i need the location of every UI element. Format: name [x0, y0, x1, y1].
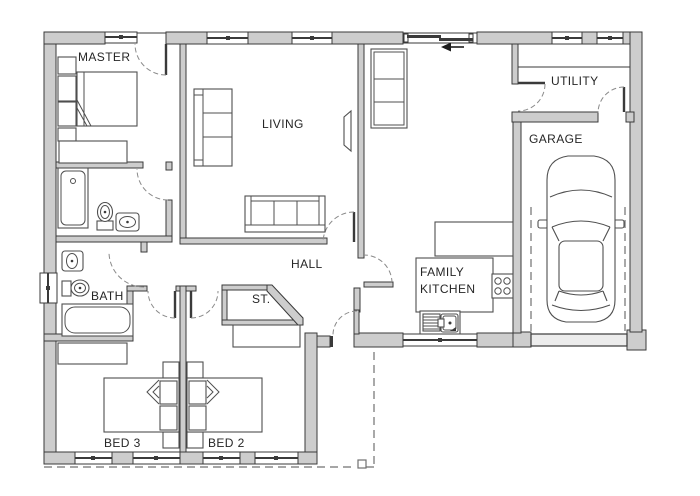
- room-label-bath: BATH: [91, 290, 124, 302]
- wardrobe: [233, 325, 300, 347]
- bathtub: [62, 304, 133, 336]
- sink: [116, 213, 139, 231]
- ensuite-fixtures: [58, 168, 139, 231]
- living-window-2: [292, 32, 332, 44]
- bed3-door: [148, 291, 175, 318]
- pillow: [160, 381, 177, 404]
- wardrobe: [58, 343, 127, 364]
- living-furniture: [194, 89, 351, 232]
- room-label-family-kitchen-line2: KITCHEN: [420, 283, 475, 295]
- garage-contents: [531, 156, 625, 331]
- room-label-bed3: BED 3: [104, 437, 141, 449]
- bed3-window-1: [75, 452, 112, 464]
- nightstand: [58, 57, 76, 74]
- sink: [62, 251, 83, 271]
- utility-window-1: [552, 32, 582, 44]
- bath-door: [109, 252, 144, 287]
- nightstand: [187, 432, 203, 448]
- bed2-window-2: [255, 452, 298, 464]
- nightstand: [58, 128, 76, 141]
- wardrobe: [58, 76, 76, 101]
- kitchen-window: [403, 334, 477, 346]
- master-door: [135, 44, 166, 75]
- ensuite-door: [137, 169, 168, 200]
- nightstand: [163, 362, 179, 378]
- kitchen-door: [364, 255, 392, 283]
- master-furniture: [58, 57, 137, 163]
- master-window: [105, 32, 137, 43]
- room-label-storage: ST.: [252, 293, 271, 305]
- counter: [435, 222, 513, 256]
- side-door: [333, 310, 359, 335]
- toilet: [62, 280, 89, 296]
- wardrobe: [58, 102, 76, 126]
- pillow: [189, 381, 206, 404]
- bed2-window-1: [203, 452, 240, 464]
- tv: [344, 111, 351, 151]
- toilet: [97, 203, 113, 231]
- bed2-door: [191, 291, 218, 318]
- sink-unit: [420, 311, 460, 334]
- closet-diagonal-wall: [267, 285, 303, 325]
- room-label-garage: GARAGE: [529, 133, 583, 145]
- garage-utility-door: [598, 87, 624, 113]
- room-label-living: LIVING: [262, 118, 304, 130]
- garage-door: [531, 334, 627, 346]
- kitchen-sliding-door: [403, 33, 477, 43]
- living-window-1: [207, 32, 248, 44]
- shower: [58, 168, 88, 228]
- nightstand: [187, 362, 203, 378]
- sofa-vertical: [194, 89, 232, 166]
- sofa-horizontal: [245, 196, 325, 232]
- utility-window-2: [597, 32, 623, 44]
- master-bed: [77, 72, 137, 126]
- room-label-utility: UTILITY: [551, 75, 598, 87]
- car: [538, 156, 624, 322]
- living-door: [323, 212, 354, 242]
- entrance-arrow: [441, 43, 464, 52]
- bed3-furniture: [58, 343, 179, 448]
- pillow: [189, 406, 206, 430]
- tall-units: [371, 49, 407, 128]
- pillow: [160, 406, 177, 430]
- dresser: [59, 141, 127, 163]
- bath-window: [40, 273, 57, 303]
- nightstand: [163, 432, 179, 448]
- room-label-bed2: BED 2: [208, 437, 245, 449]
- floor-plan: MASTER LIVING UTILITY GARAGE HALL FAMILY…: [0, 0, 700, 496]
- room-label-family-kitchen-line1: FAMILY: [420, 266, 464, 278]
- bed2-furniture: [187, 325, 300, 448]
- bed3-window-2: [133, 452, 180, 464]
- room-label-hall: HALL: [291, 258, 323, 270]
- room-label-master: MASTER: [78, 51, 130, 63]
- hob: [492, 274, 513, 298]
- utility-door: [518, 83, 545, 111]
